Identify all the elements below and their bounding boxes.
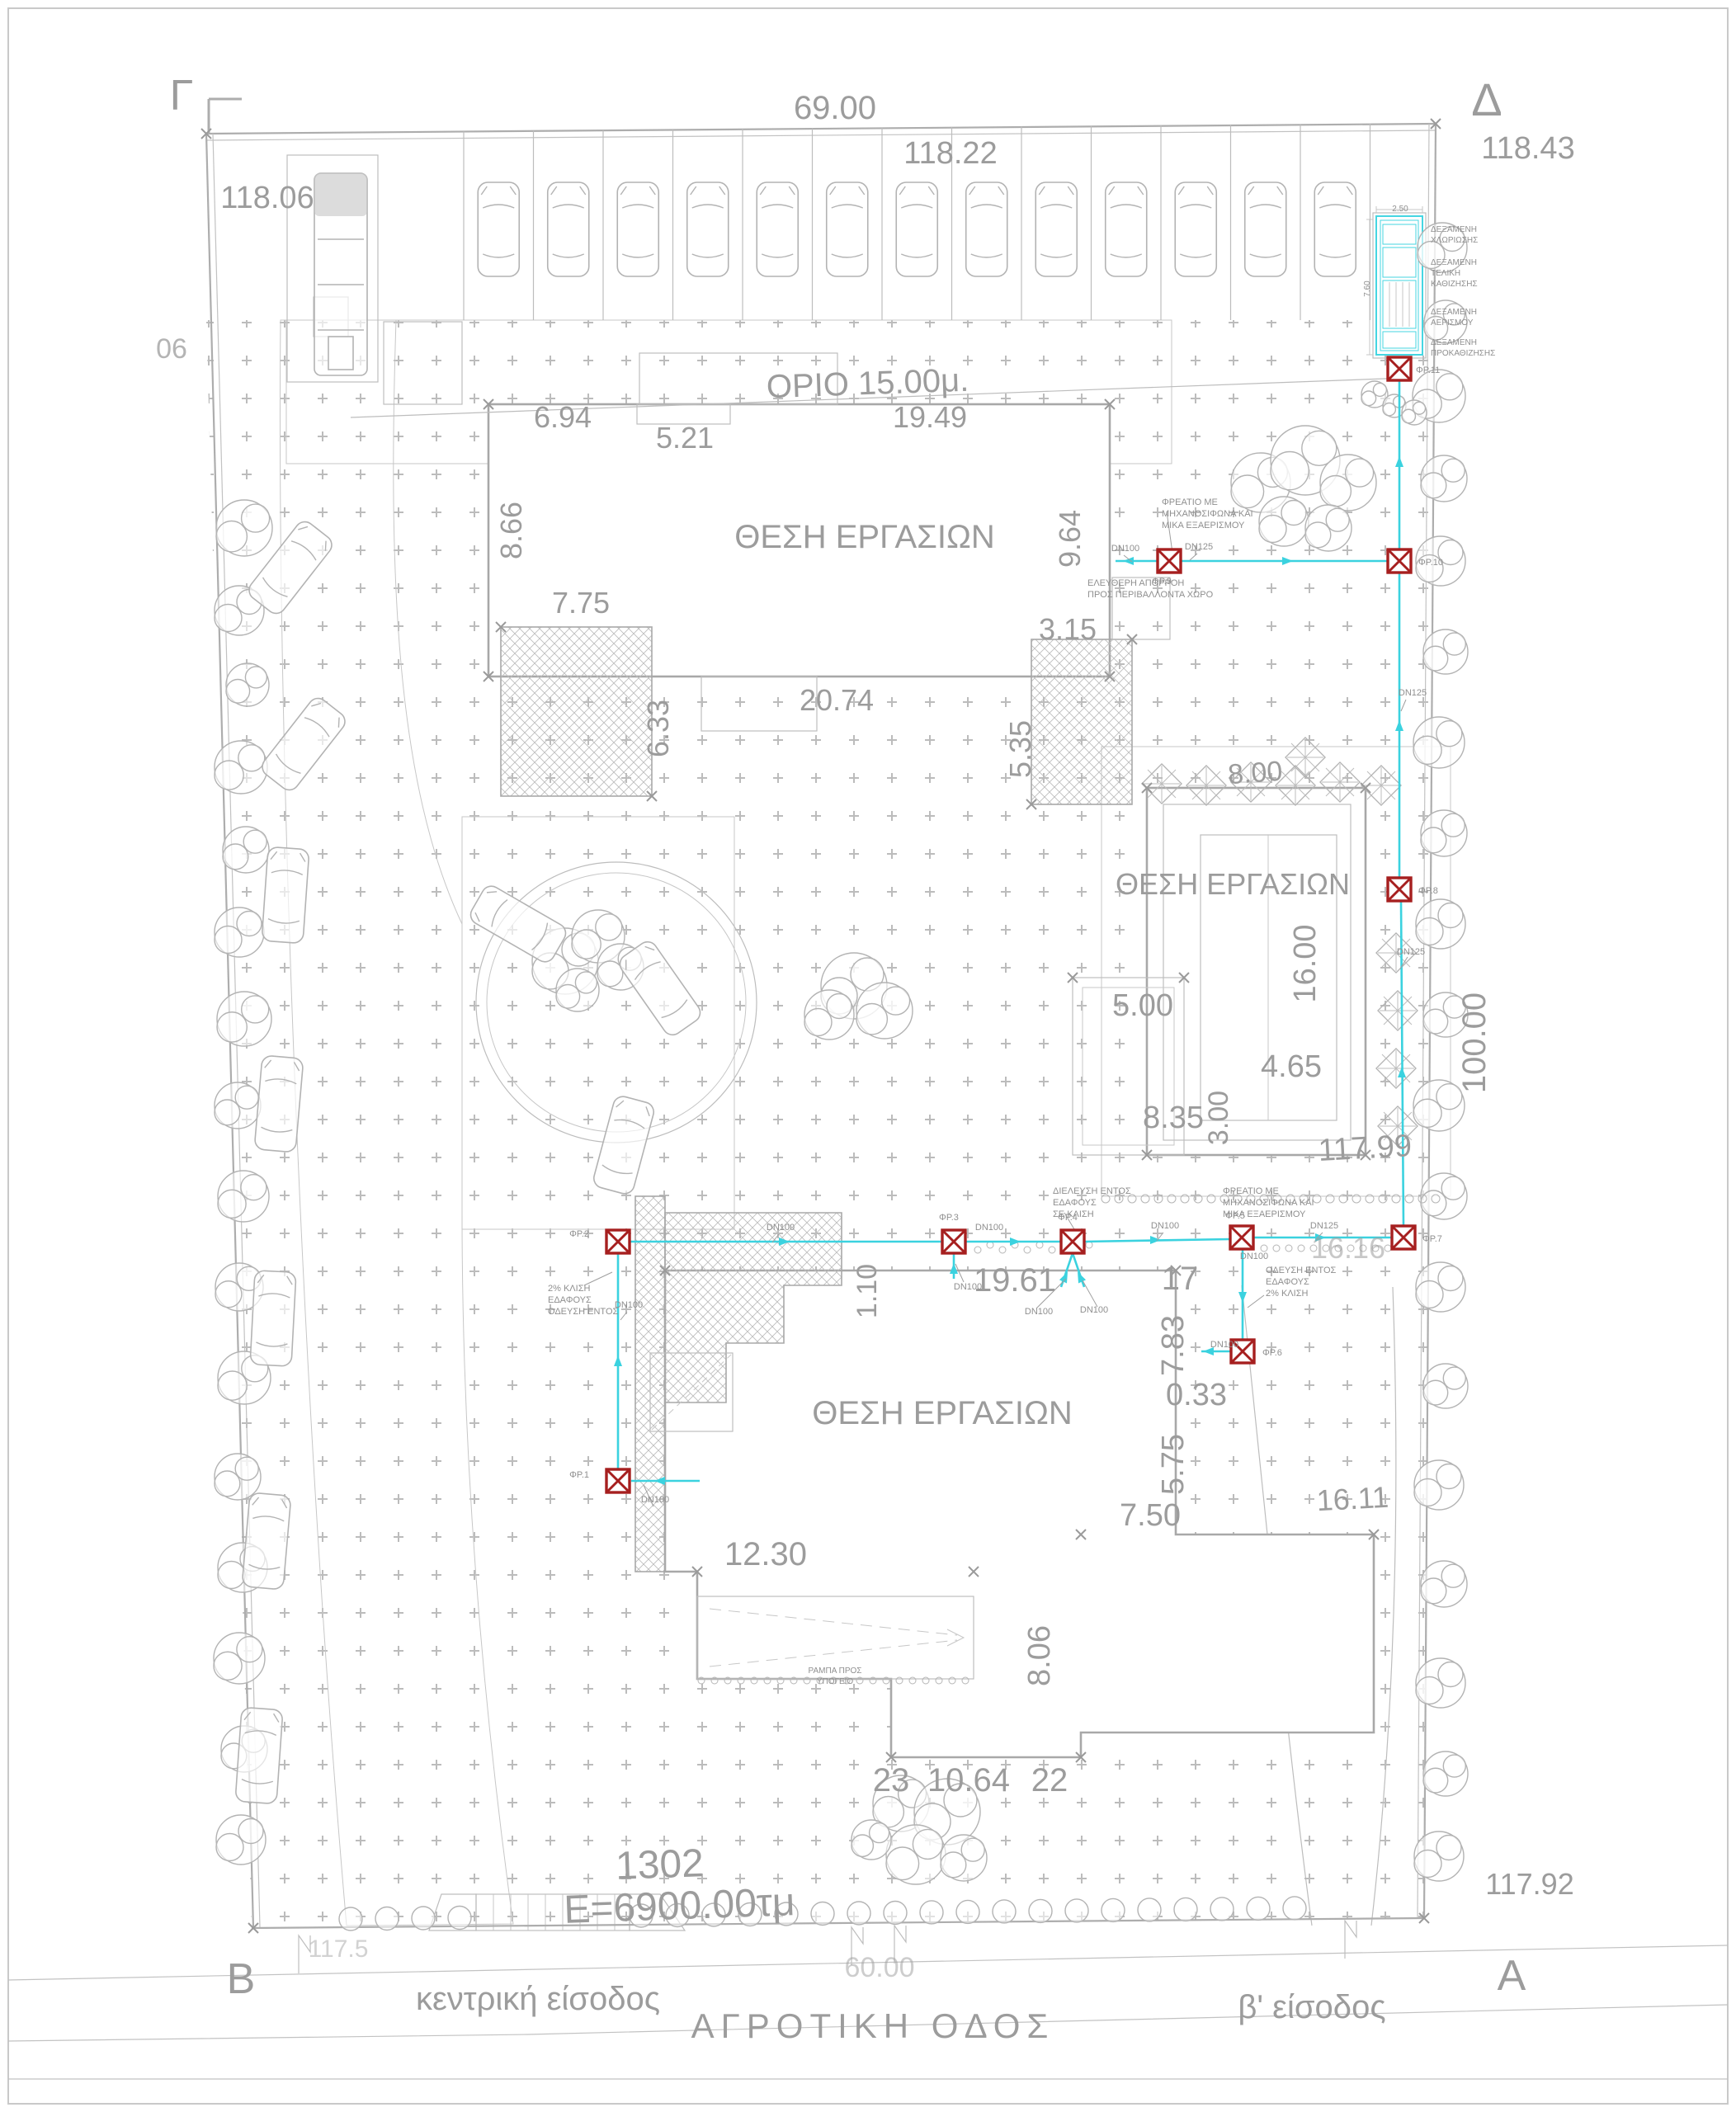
tank-dim: 7.60: [1363, 280, 1372, 297]
note-route-slope-left-line: 2% ΚΛΙΣΗ: [548, 1284, 590, 1294]
manhole-label: ΦΡ.7: [1422, 1234, 1442, 1244]
corner-bracket-gamma: [209, 99, 242, 134]
tree-icon: [216, 500, 272, 556]
pipe-size: DN100: [615, 1300, 643, 1310]
b2-dim: 4.65: [1261, 1049, 1322, 1084]
parked-car: [757, 182, 798, 276]
hedge-bush-icon: [1247, 1897, 1270, 1920]
hedge-bush-icon: [1138, 1898, 1161, 1921]
b1-dim: 5.35: [1003, 720, 1037, 778]
tree-icon: [1416, 899, 1465, 949]
note-free-drain-line: ΕΛΕΥΘΕΡΗ ΑΠΟΡΡΟΗ: [1087, 578, 1184, 588]
plot-number: 1302: [615, 1841, 705, 1888]
entrance-secondary: β' είσοδος: [1238, 1989, 1385, 2025]
tree-icon: [804, 990, 854, 1039]
pipe-dim: 1.10: [851, 1264, 883, 1318]
tree-icon: [1421, 1561, 1467, 1607]
pipe-size: DN100: [1151, 1221, 1179, 1231]
hedge-bush-icon: [339, 1907, 362, 1930]
note-route-slope-right-line: ΕΔΑΦΟΥΣ: [1266, 1277, 1309, 1287]
manhole-label: ΦΡ.3: [939, 1213, 959, 1223]
manhole-label: ΦΡ.6: [1262, 1348, 1282, 1358]
corner-gamma: Γ: [170, 72, 194, 120]
b1-dim: 3.15: [1039, 612, 1097, 646]
tree-icon: [851, 1820, 891, 1860]
car-icon: [242, 1492, 291, 1590]
parked-car: [1175, 182, 1216, 276]
tank-label-presettling-line: ΔΕΞΑΜΕΝΗ: [1431, 338, 1477, 347]
building-1-terrace-east: [1031, 639, 1132, 804]
parked-car: [1314, 182, 1356, 276]
elevation-sw: 117.5: [309, 1935, 369, 1963]
pergola-plant-icon: [1376, 1049, 1416, 1088]
note-siphon-vent-mid-line: ΜΙΚΑ ΕΞΑΕΡΙΣΜΟΥ: [1223, 1209, 1306, 1219]
b3-dim: 8.06: [1022, 1625, 1057, 1686]
pipe-size: DN125: [1310, 1221, 1338, 1231]
b3-dim: 16.16: [1311, 1231, 1385, 1265]
tank-label-final-settling-line: ΚΑΘΙΖΗΣΗΣ: [1431, 280, 1478, 289]
tree-icon: [215, 907, 264, 957]
manhole-label: ΦΡ.2: [569, 1229, 589, 1239]
hedge-bush-icon: [956, 1900, 979, 1923]
parked-car: [966, 182, 1007, 276]
b3-dim: 5.75: [1156, 1434, 1191, 1495]
tree-icon: [1421, 455, 1467, 502]
b1-dim: 19.49: [893, 400, 967, 434]
b2-dim: 5.00: [1112, 988, 1173, 1023]
b2-dim: 3.00: [1203, 1091, 1234, 1145]
b2-dim: 16.00: [1288, 924, 1323, 1002]
car-icon: [254, 1055, 304, 1153]
tree-icon: [215, 741, 267, 794]
manhole-label: ΦΡ.10: [1418, 558, 1443, 568]
parked-car: [478, 182, 519, 276]
tree-icon: [886, 1825, 946, 1884]
tree-icon: [1414, 1831, 1464, 1881]
building2-label: ΘΕΣΗ ΕΡΓΑΣΙΩΝ: [1116, 867, 1350, 901]
tree-icon: [1423, 629, 1468, 674]
tree-icon: [1421, 1173, 1467, 1219]
b1-dim: 6.94: [534, 400, 592, 434]
tree-icon: [1423, 1364, 1468, 1408]
parked-car: [1245, 182, 1286, 276]
tank-label-aeration-line: ΑΕΡΙΣΜΟΥ: [1431, 318, 1474, 328]
path-dim: 16.11: [1316, 1480, 1389, 1518]
pipe-size: DN100: [1210, 1340, 1238, 1350]
b1-dim: 20.74: [800, 683, 874, 717]
corner-delta: Δ: [1471, 73, 1502, 125]
elevation-nw: 118.06: [220, 181, 314, 215]
hedge-bush-icon: [412, 1907, 435, 1930]
pergola-plant-icon: [1378, 991, 1418, 1030]
tree-icon: [216, 1815, 266, 1864]
tank-label-chlorination-line: ΧΛΩΡΙΩΣΗΣ: [1431, 236, 1478, 245]
parked-car: [1035, 182, 1077, 276]
hedge-bush-icon: [920, 1901, 943, 1924]
pergola-plant-icon: [1186, 766, 1226, 805]
b2-dim: 8.35: [1143, 1101, 1204, 1135]
note-siphon-vent-mid-line: ΜΗΧΑΝΟΣΙΦΩΝΑ ΚΑΙ: [1223, 1198, 1314, 1208]
setback-line-label: ΟΡΙΟ 15.00μ.: [766, 362, 969, 406]
pipe-size: DN100: [975, 1223, 1003, 1233]
manhole-label: ΦΡ.1: [569, 1470, 589, 1480]
tank-label-final-settling-line: ΔΕΞΑΜΕΝΗ: [1431, 258, 1477, 267]
note-siphon-vent-top-line: ΜΗΧΑΝΟΣΙΦΩΝΑ ΚΑΙ: [1162, 509, 1253, 519]
pergola-plant-icon: [1142, 764, 1182, 804]
pipe-size: DN100: [1240, 1252, 1268, 1261]
tree-icon: [214, 1633, 265, 1684]
note-siphon-vent-top-line: ΜΙΚΑ ΕΞΑΕΡΙΣΜΟΥ: [1162, 521, 1245, 530]
parked-car: [687, 182, 729, 276]
car-icon: [235, 1707, 283, 1803]
parked-car: [1106, 182, 1147, 276]
note-ramp-line: ΡΑΜΠΑ ΠΡΟΣ: [809, 1666, 862, 1676]
hedge-bush-icon: [1029, 1899, 1052, 1922]
tank-label-final-settling-line: ΤΕΛΙΚΗ: [1431, 269, 1460, 278]
tree-icon: [1423, 1751, 1468, 1796]
pipe-size: DN100: [1080, 1305, 1108, 1315]
tree-icon: [226, 663, 269, 706]
parked-car: [827, 182, 868, 276]
note-siphon-vent-mid-line: ΦΡΕΑΤΙΟ ΜΕ: [1223, 1186, 1279, 1196]
pipe-size: DN100: [767, 1223, 795, 1233]
parked-car: [548, 182, 589, 276]
tank-label-presettling-line: ΠΡΟΚΑΘΙΖΗΣΗΣ: [1431, 349, 1495, 358]
note-route-slope-left-line: ΕΔΑΦΟΥΣ: [548, 1295, 592, 1305]
b3-dim: 0.33: [1166, 1378, 1227, 1412]
note-free-drain-line: ΠΡΟΣ ΠΕΡΙΒΑΛΛΟΝΤΑ ΧΩΡΟ: [1087, 590, 1214, 600]
elevation-court: 117.99: [1318, 1129, 1413, 1168]
tree-icon: [1402, 400, 1427, 425]
b3-dim: 7.83: [1156, 1315, 1191, 1376]
car-icon: [250, 1270, 296, 1366]
tank-label-chlorination-line: ΔΕΞΑΜΕΝΗ: [1431, 225, 1477, 234]
pipe-size: DN125: [1185, 542, 1213, 552]
site-plan-sheet: ΦΡ.1ΦΡ.2ΦΡ.3ΦΡ.4ΦΡ.5ΦΡ.6ΦΡ.7ΦΡ.8ΦΡ.9ΦΡ.1…: [0, 0, 1736, 2112]
note-crossing-slope-line: ΕΔΑΦΟΥΣ: [1053, 1198, 1097, 1208]
hedge-bush-icon: [884, 1901, 907, 1924]
manhole-label: ΦΡ.11: [1416, 365, 1440, 375]
entrance-main: κεντρική είσοδος: [416, 1981, 660, 2017]
pipe-size: DN100: [1025, 1307, 1053, 1317]
corner-beta: Β: [227, 1955, 256, 2003]
hedge-bush-icon: [993, 1900, 1016, 1923]
hedge-bush-icon: [448, 1906, 471, 1929]
elevation-fragment: 06: [156, 333, 187, 365]
tree-icon: [1320, 455, 1376, 511]
elevation-n: 118.22: [903, 136, 997, 171]
manhole-label: ΦΡ.8: [1418, 886, 1438, 896]
tree-icon: [218, 1171, 269, 1222]
note-route-slope-right-line: 2% ΚΛΙΣΗ: [1266, 1289, 1308, 1299]
hedge-bush-icon: [375, 1907, 399, 1930]
pipe-dim: 19.61: [974, 1262, 1056, 1299]
car-icon: [262, 846, 309, 943]
tree-icon: [1414, 1460, 1464, 1510]
b3-dim: 7.50: [1120, 1498, 1181, 1533]
pipe-size: DN100: [954, 1282, 982, 1292]
tree-icon: [1416, 1262, 1465, 1312]
tank-label-aeration-line: ΔΕΞΑΜΕΝΗ: [1431, 308, 1477, 317]
tank-dim: 2.50: [1392, 205, 1408, 214]
tree-icon: [223, 827, 269, 873]
note-route-slope-left-line: ΟΔΕΥΣΗ ΕΝΤΟΣ: [548, 1307, 619, 1317]
note-crossing-slope-line: ΣΕ ΚΛΙΣΗ: [1053, 1209, 1094, 1219]
elevation-ne: 118.43: [1481, 131, 1574, 166]
dim-site-depth: 100.00: [1456, 992, 1493, 1093]
tree-icon: [1416, 1658, 1465, 1708]
b3-dim: 22: [1031, 1762, 1068, 1798]
tree-icon: [215, 1454, 261, 1500]
pergola-plant-icon: [1320, 762, 1360, 802]
b1-dim: 6.33: [641, 700, 675, 757]
parked-car: [896, 182, 937, 276]
tree-icon: [556, 969, 599, 1011]
tree-icon: [1259, 497, 1309, 546]
hedge-bush-icon: [811, 1902, 834, 1925]
note-route-slope-right-line: ΟΔΕΥΣΗ ΕΝΤΟΣ: [1266, 1266, 1337, 1275]
b1-dim: 9.64: [1053, 510, 1087, 568]
tree-icon: [1305, 505, 1352, 551]
note-ramp-line: ΥΠΟΓΕΙΟ: [817, 1677, 854, 1686]
b2-dim: 8.00: [1227, 756, 1284, 791]
pipe-size: DN100: [641, 1495, 669, 1505]
hedge-bush-icon: [1174, 1897, 1197, 1921]
elevation-se: 117.92: [1485, 1867, 1573, 1901]
parked-car: [617, 182, 658, 276]
dim-site-top: 69.00: [794, 90, 876, 126]
pipe-dim: 17: [1162, 1261, 1199, 1297]
b1-dim: 8.66: [494, 502, 528, 559]
site-plan-drawing: ΦΡ.1ΦΡ.2ΦΡ.3ΦΡ.4ΦΡ.5ΦΡ.6ΦΡ.7ΦΡ.8ΦΡ.9ΦΡ.1…: [0, 0, 1736, 2112]
note-siphon-vent-top-line: ΦΡΕΑΤΙΟ ΜΕ: [1162, 497, 1218, 507]
dim-site-road: 60.00: [844, 1952, 914, 1983]
hedge-bush-icon: [847, 1902, 870, 1925]
hedge-bush-icon: [1210, 1897, 1234, 1921]
hedge-bush-icon: [1102, 1898, 1125, 1921]
corner-alpha: Α: [1498, 1952, 1526, 2000]
road-name: ΑΓΡΟΤΙΚΗ ΟΔΟΣ: [691, 2006, 1055, 2045]
tree-icon: [215, 1082, 261, 1129]
tree-icon: [856, 983, 913, 1039]
pipe-size: DN125: [1399, 688, 1427, 698]
b3-dim: 12.30: [724, 1536, 807, 1572]
pipe-size: DN125: [1397, 947, 1425, 957]
tree-icon: [941, 1835, 987, 1881]
hedge-bush-icon: [1283, 1897, 1306, 1920]
b3-dim: 10.64: [927, 1762, 1010, 1798]
pipe-size: DN100: [1111, 544, 1139, 554]
b1-dim: 5.21: [656, 421, 714, 455]
tree-icon: [1421, 810, 1467, 856]
plot-area: Ε=6900.00τμ: [564, 1880, 796, 1932]
building3-label: ΘΕΣΗ ΕΡΓΑΣΙΩΝ: [812, 1395, 1073, 1431]
b1-dim: 7.75: [552, 586, 610, 620]
tree-icon: [217, 992, 271, 1046]
note-crossing-slope-line: ΔΙΕΛΕΥΣΗ ΕΝΤΟΣ: [1053, 1186, 1131, 1196]
hedge-bush-icon: [1065, 1899, 1088, 1922]
tree-icon: [1413, 717, 1465, 768]
b3-dim: 23: [873, 1762, 910, 1798]
pergola-plant-icon: [1285, 738, 1325, 777]
building1-label: ΘΕΣΗ ΕΡΓΑΣΙΩΝ: [734, 519, 995, 555]
building-1-terrace-west: [501, 627, 652, 796]
